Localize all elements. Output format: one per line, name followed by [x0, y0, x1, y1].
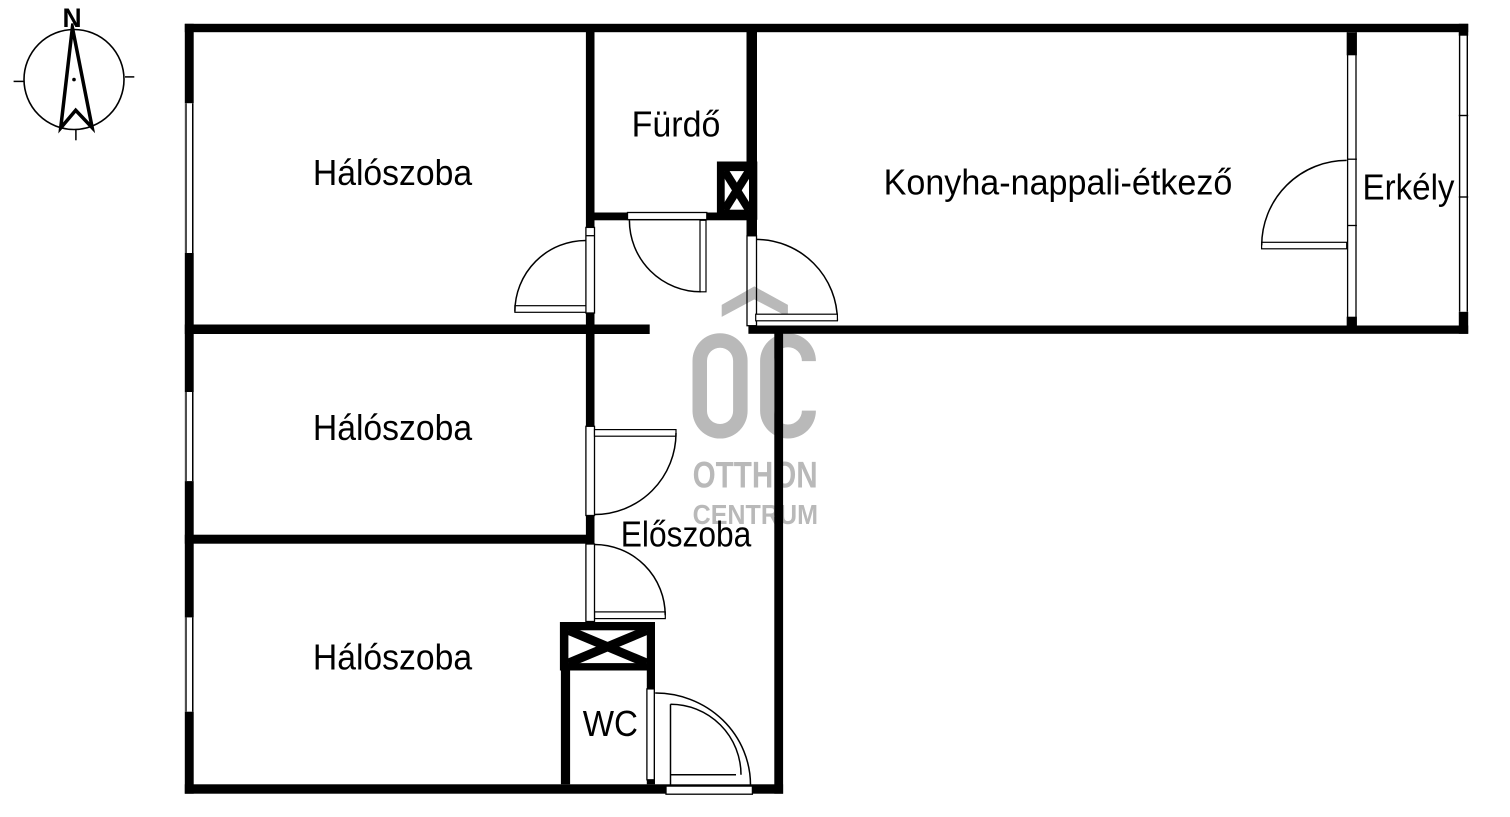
- svg-text:Erkély: Erkély: [1363, 166, 1455, 207]
- svg-text:Hálószoba: Hálószoba: [313, 637, 473, 678]
- svg-text:N: N: [63, 3, 82, 33]
- svg-text:Hálószoba: Hálószoba: [313, 407, 473, 448]
- svg-text:CENTRUM: CENTRUM: [693, 499, 818, 530]
- svg-text:Fürdő: Fürdő: [632, 104, 721, 145]
- svg-text:WC: WC: [583, 703, 638, 744]
- svg-text:Hálószoba: Hálószoba: [313, 152, 473, 193]
- svg-text:OTTHON: OTTHON: [693, 454, 818, 496]
- svg-text:Konyha-nappali-étkező: Konyha-nappali-étkező: [884, 162, 1233, 203]
